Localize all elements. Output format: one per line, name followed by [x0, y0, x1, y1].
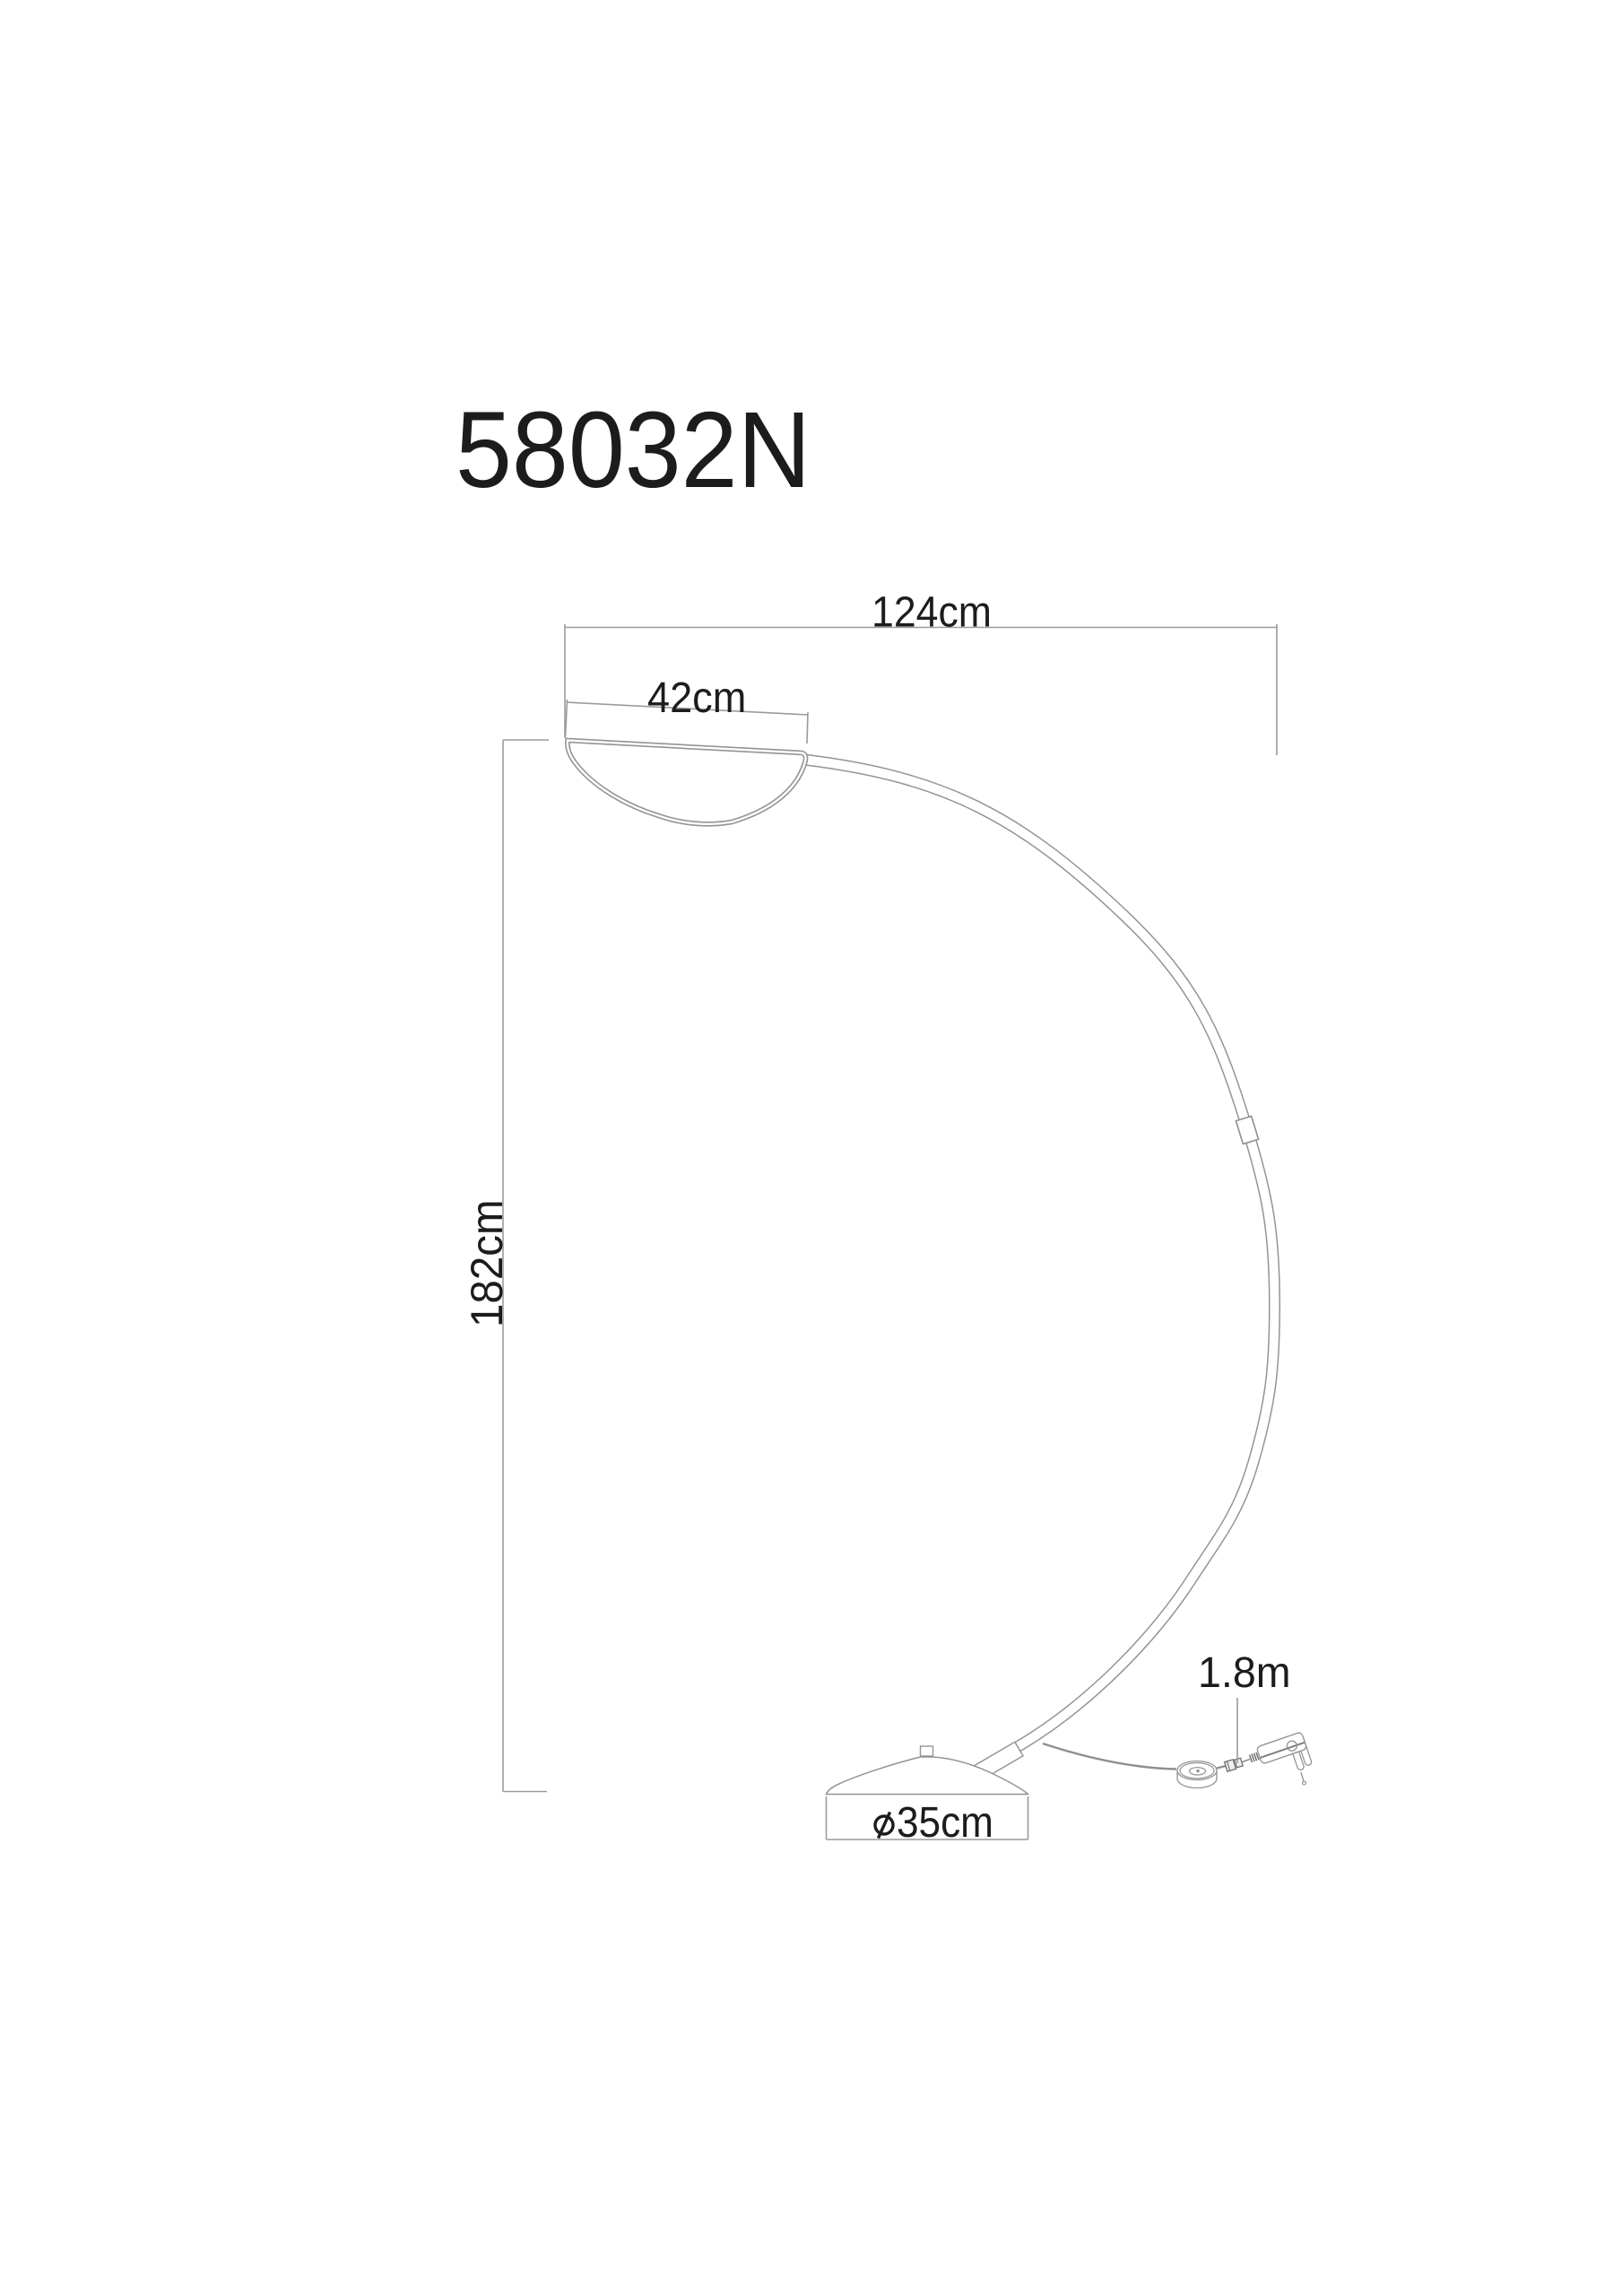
- svg-text:182cm: 182cm: [463, 1199, 512, 1327]
- svg-text:124cm: 124cm: [872, 587, 992, 636]
- svg-text:35cm: 35cm: [897, 1797, 993, 1846]
- svg-text:42cm: 42cm: [647, 674, 746, 722]
- svg-text:1.8m: 1.8m: [1198, 1648, 1290, 1697]
- svg-text:58032N: 58032N: [455, 389, 811, 510]
